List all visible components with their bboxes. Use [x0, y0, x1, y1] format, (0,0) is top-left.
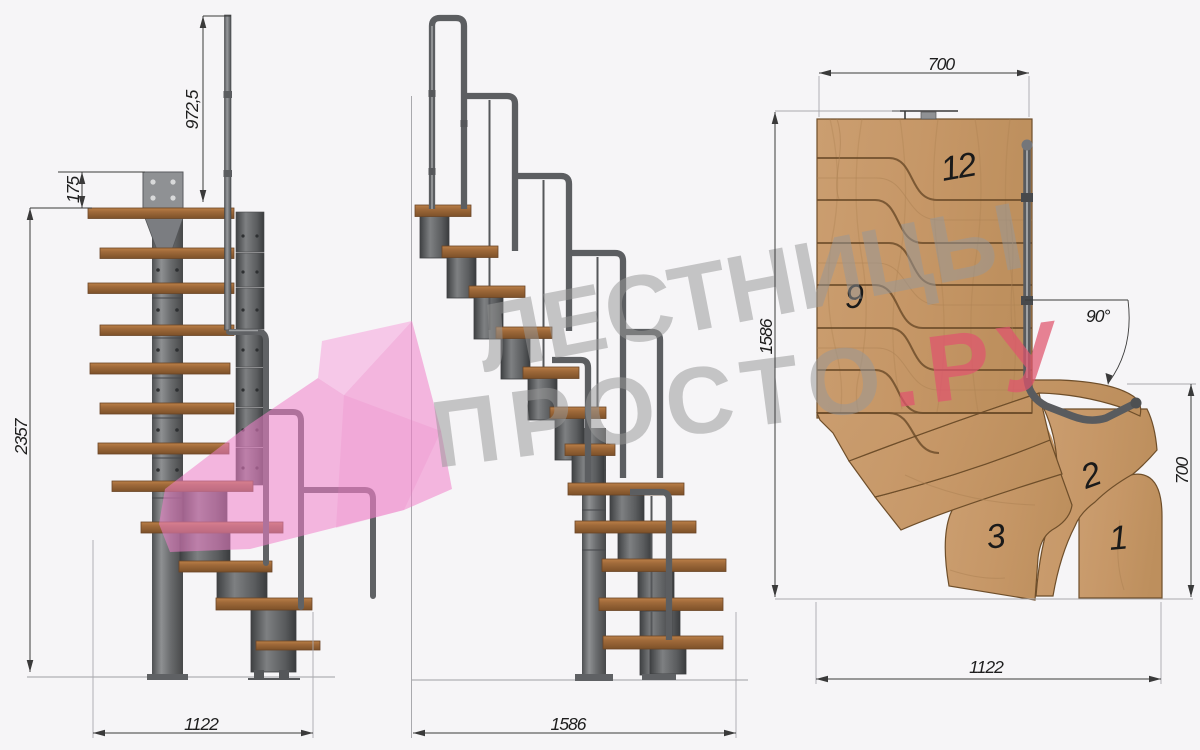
- svg-text:1586: 1586: [756, 318, 776, 354]
- svg-text:1586: 1586: [551, 714, 587, 734]
- svg-text:1: 1: [1107, 519, 1127, 558]
- svg-text:700: 700: [928, 54, 955, 74]
- svg-text:700: 700: [1172, 457, 1192, 484]
- svg-text:2357: 2357: [11, 417, 31, 455]
- svg-text:972,5: 972,5: [182, 89, 202, 129]
- svg-text:1122: 1122: [184, 714, 219, 734]
- svg-text:175: 175: [63, 176, 83, 203]
- svg-text:90°: 90°: [1086, 306, 1110, 326]
- svg-text:1122: 1122: [969, 657, 1004, 677]
